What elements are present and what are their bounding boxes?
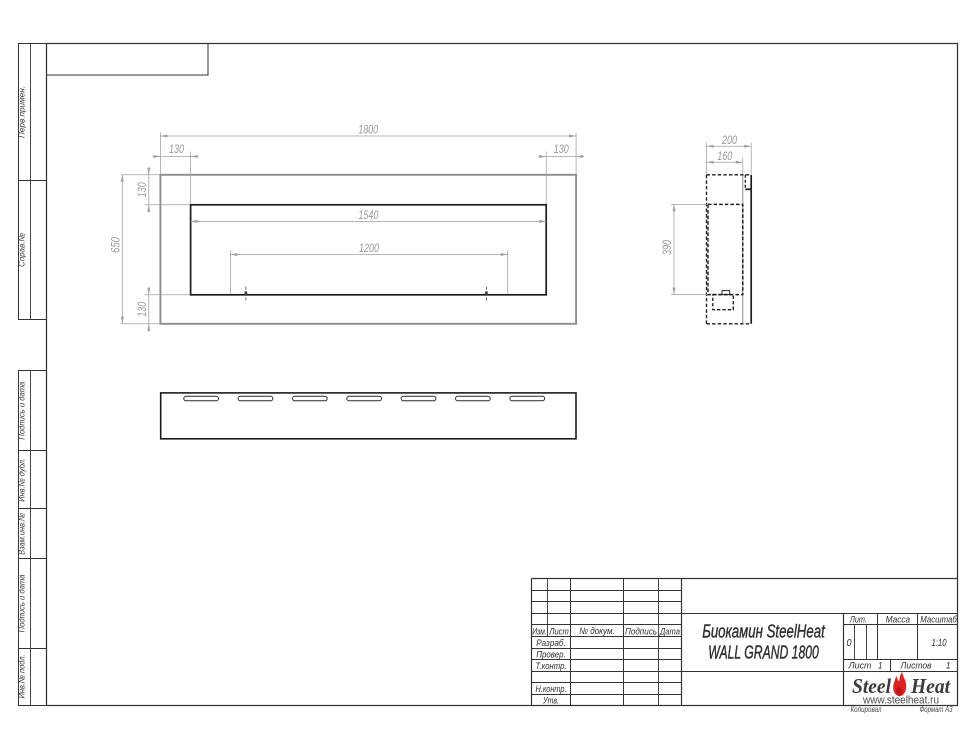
svg-text:1: 1 [878,660,883,670]
svg-text:1200: 1200 [359,241,379,255]
svg-text:1540: 1540 [358,208,378,222]
svg-text:Инв.№ дубл.: Инв.№ дубл. [17,458,27,502]
svg-text:1: 1 [946,660,951,670]
svg-text:№ докум.: № докум. [579,626,615,636]
svg-text:Масса: Масса [886,615,911,625]
svg-text:Изм.: Изм. [532,626,547,636]
svg-text:130: 130 [135,302,149,317]
svg-text:Масштаб: Масштаб [920,615,957,625]
svg-text:Лист: Лист [548,626,569,636]
svg-text:Подпись: Подпись [625,626,657,636]
svg-text:Т.контр.: Т.контр. [536,661,567,671]
svg-text:Лит.: Лит. [849,615,867,625]
svg-text:130: 130 [554,142,569,156]
svg-text:130: 130 [169,142,184,156]
svg-text:Подпись и дата: Подпись и дата [17,382,27,440]
svg-text:Перв.примен.: Перв.примен. [17,86,27,138]
svg-text:Справ.№: Справ.№ [17,233,27,267]
svg-text:Копировал: Копировал [851,705,882,714]
svg-text:650: 650 [108,237,122,253]
svg-text:200: 200 [721,133,737,147]
svg-text:Подпись и дата: Подпись и дата [17,574,27,632]
svg-text:390: 390 [660,240,674,255]
svg-text:WALL GRAND 1800: WALL GRAND 1800 [708,643,819,663]
svg-text:Провер.: Провер. [536,649,566,659]
svg-text:160: 160 [717,149,732,163]
svg-text:1800: 1800 [358,123,378,137]
svg-text:Разраб.: Разраб. [536,638,566,648]
svg-text:Лист: Лист [848,660,872,670]
svg-text:Н.контр.: Н.контр. [536,684,567,694]
svg-text:130: 130 [135,182,149,197]
svg-text:0: 0 [847,637,852,649]
svg-text:Дата: Дата [659,626,680,636]
svg-text:Утв.: Утв. [542,695,559,705]
svg-text:Инв.№ подл.: Инв.№ подл. [17,654,27,698]
svg-text:Формат А3: Формат А3 [920,705,953,714]
svg-text:Листов: Листов [900,660,932,670]
svg-text:Взам.инв.№: Взам.инв.№ [17,513,27,555]
svg-text:1:10: 1:10 [932,637,947,649]
svg-text:Биокамин SteelHeat: Биокамин SteelHeat [702,622,825,642]
